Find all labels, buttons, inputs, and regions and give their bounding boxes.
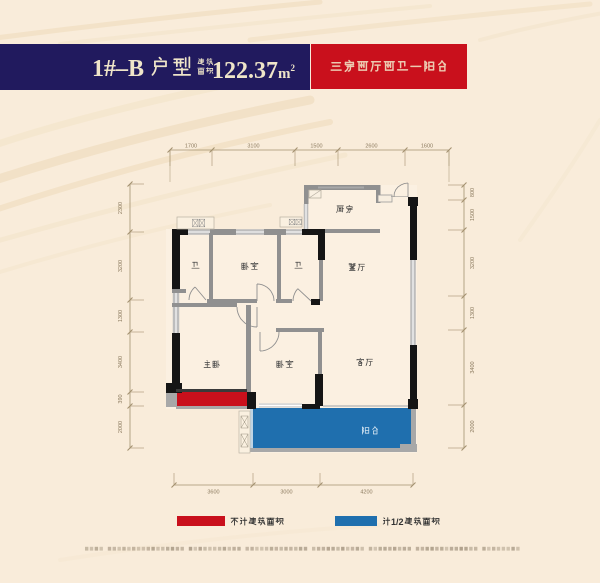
svg-text:800: 800 xyxy=(470,188,476,197)
svg-text:4200: 4200 xyxy=(360,490,372,496)
svg-text:1500: 1500 xyxy=(310,144,322,150)
svg-text:1300: 1300 xyxy=(470,307,476,319)
svg-text:3400: 3400 xyxy=(470,361,476,373)
svg-text:1500: 1500 xyxy=(470,209,476,221)
svg-text:1#–B: 1#–B xyxy=(92,56,144,82)
svg-text:3000: 3000 xyxy=(280,490,292,496)
svg-text:2300: 2300 xyxy=(118,202,124,214)
svg-text:3200: 3200 xyxy=(470,257,476,269)
svg-text:1300: 1300 xyxy=(118,310,124,322)
svg-text:390: 390 xyxy=(118,394,124,403)
svg-text:2000: 2000 xyxy=(118,421,124,433)
svg-text:3200: 3200 xyxy=(118,260,124,272)
svg-text:3100: 3100 xyxy=(247,144,259,150)
svg-text:3400: 3400 xyxy=(118,356,124,368)
svg-text:1/2: 1/2 xyxy=(391,517,404,527)
svg-text:1700: 1700 xyxy=(185,144,197,150)
svg-text:2600: 2600 xyxy=(365,144,377,150)
svg-text:1600: 1600 xyxy=(421,144,433,150)
svg-text:3600: 3600 xyxy=(207,490,219,496)
svg-text:2000: 2000 xyxy=(470,420,476,432)
